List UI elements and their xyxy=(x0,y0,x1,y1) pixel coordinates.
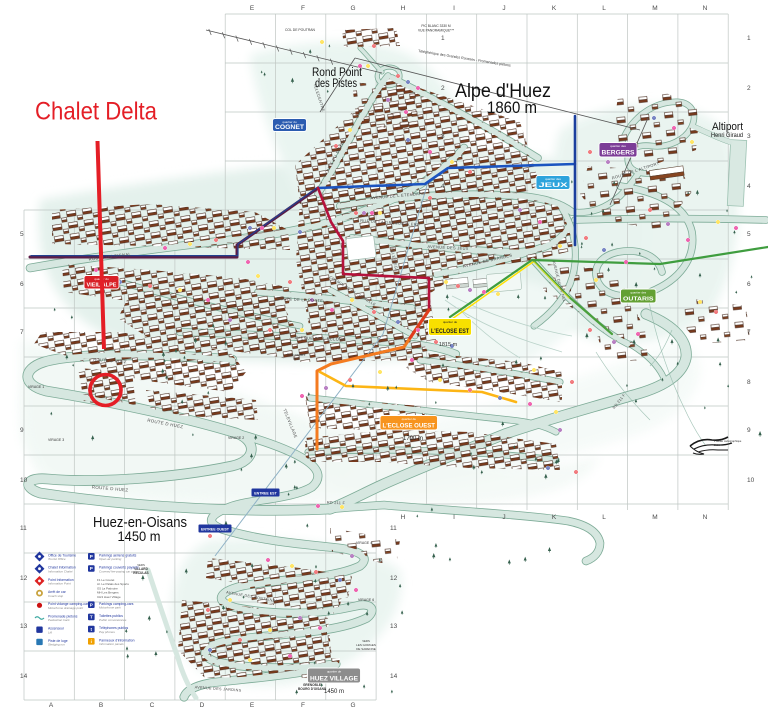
svg-text:Information panels: Information panels xyxy=(99,642,124,646)
svg-text:VUE PANORAMIQUE***: VUE PANORAMIQUE*** xyxy=(418,29,455,33)
svg-text:L'Atelier cartographique: L'Atelier cartographique xyxy=(714,439,742,443)
svg-text:2: 2 xyxy=(441,85,445,92)
svg-text:J: J xyxy=(502,5,505,12)
svg-text:C: C xyxy=(150,702,155,709)
svg-text:13: 13 xyxy=(20,623,28,630)
svg-text:Coach stop: Coach stop xyxy=(48,594,64,598)
svg-text:P: P xyxy=(90,554,93,559)
svg-text:12: 12 xyxy=(20,575,28,582)
svg-text:JEUX: JEUX xyxy=(539,182,570,189)
svg-text:Pay phones: Pay phones xyxy=(99,630,115,634)
svg-text:Chalet Delta: Chalet Delta xyxy=(35,98,157,126)
svg-text:I: I xyxy=(453,514,455,521)
svg-text:VFD: VFD xyxy=(293,357,300,361)
svg-text:D: D xyxy=(200,702,205,709)
svg-text:F: F xyxy=(301,5,305,12)
svg-text:11: 11 xyxy=(20,525,27,532)
svg-text:H: H xyxy=(401,5,406,12)
svg-text:G: G xyxy=(350,5,355,12)
svg-text:14: 14 xyxy=(390,673,398,680)
svg-text:RD 211 F: RD 211 F xyxy=(327,501,346,506)
svg-text:OUTARIS: OUTARIS xyxy=(623,296,654,302)
svg-text:6: 6 xyxy=(20,281,24,288)
svg-text:quartier des: quartier des xyxy=(545,177,561,181)
svg-text:1790 m: 1790 m xyxy=(403,436,423,442)
svg-text:1815 m: 1815 m xyxy=(439,342,458,348)
svg-text:9: 9 xyxy=(747,427,751,434)
svg-text:CH3 Huez Village: CH3 Huez Village xyxy=(97,595,121,599)
svg-text:PIC BLANC 3330 M: PIC BLANC 3330 M xyxy=(421,24,451,28)
svg-text:COL DE POUTRAN: COL DE POUTRAN xyxy=(285,28,316,32)
svg-text:M: M xyxy=(652,514,657,521)
svg-text:Motorhome drainage point: Motorhome drainage point xyxy=(48,606,83,610)
svg-text:N: N xyxy=(703,514,708,521)
svg-text:L: L xyxy=(602,514,606,521)
svg-text:COGNET: COGNET xyxy=(275,124,304,131)
svg-text:quartier de: quartier de xyxy=(327,670,342,674)
svg-text:10: 10 xyxy=(747,477,755,484)
svg-text:M: M xyxy=(652,5,657,12)
svg-text:Tourist Office: Tourist Office xyxy=(48,557,66,561)
svg-text:13: 13 xyxy=(390,623,398,630)
svg-text:ENTREE OUEST: ENTREE OUEST xyxy=(201,528,230,532)
svg-text:1: 1 xyxy=(441,35,445,42)
svg-text:i: i xyxy=(91,639,92,644)
svg-text:3: 3 xyxy=(441,133,445,140)
svg-text:VIRAGE 1: VIRAGE 1 xyxy=(28,385,44,389)
svg-text:F: F xyxy=(301,702,305,709)
svg-text:HUEZ VILLAGE: HUEZ VILLAGE xyxy=(310,675,358,682)
svg-text:Sledging run: Sledging run xyxy=(48,643,65,647)
svg-text:N: N xyxy=(703,5,708,12)
svg-text:Open-air parking: Open-air parking xyxy=(99,557,122,561)
svg-text:14: 14 xyxy=(20,673,28,680)
svg-text:ENTREE EST: ENTREE EST xyxy=(254,492,277,496)
svg-text:VIRAGE 3: VIRAGE 3 xyxy=(48,438,64,442)
svg-text:7: 7 xyxy=(747,329,751,336)
svg-text:VIRAGE 6: VIRAGE 6 xyxy=(358,598,374,602)
svg-text:6: 6 xyxy=(747,281,751,288)
svg-text:Pedestrian track: Pedestrian track xyxy=(48,618,70,622)
svg-text:1: 1 xyxy=(747,35,751,42)
svg-text:Henri Giraud: Henri Giraud xyxy=(711,133,743,139)
svg-text:P: P xyxy=(90,566,93,571)
svg-text:quartier de: quartier de xyxy=(443,320,458,324)
svg-text:12: 12 xyxy=(390,575,398,582)
svg-text:E: E xyxy=(250,5,255,12)
svg-text:2005: 2005 xyxy=(714,443,720,447)
svg-text:quartier de: quartier de xyxy=(402,417,417,421)
svg-text:T: T xyxy=(90,615,93,620)
svg-text:1450 m: 1450 m xyxy=(324,689,344,695)
svg-text:H: H xyxy=(401,514,406,521)
svg-text:Information Point: Information Point xyxy=(48,582,71,586)
svg-text:Lift: Lift xyxy=(48,630,52,634)
svg-text:Motorhome park: Motorhome park xyxy=(99,606,121,610)
svg-text:11: 11 xyxy=(390,525,397,532)
svg-text:1860 m: 1860 m xyxy=(487,98,537,117)
svg-text:quartier des: quartier des xyxy=(630,291,646,295)
svg-text:I: I xyxy=(453,5,455,12)
svg-text:1450 m: 1450 m xyxy=(118,528,161,544)
svg-text:Public conveniences: Public conveniences xyxy=(99,618,127,622)
svg-text:quartier des: quartier des xyxy=(610,144,626,148)
svg-text:B: B xyxy=(99,702,103,709)
svg-text:4: 4 xyxy=(441,183,445,190)
svg-text:BERGERS: BERGERS xyxy=(602,149,635,156)
svg-text:Altiport: Altiport xyxy=(712,121,743,133)
svg-text:8: 8 xyxy=(747,379,751,386)
svg-text:DE SARENNE: DE SARENNE xyxy=(356,647,376,651)
svg-text:G: G xyxy=(350,702,355,709)
svg-text:4: 4 xyxy=(747,183,751,190)
svg-text:K: K xyxy=(552,514,557,521)
svg-text:K: K xyxy=(552,5,557,12)
svg-text:2: 2 xyxy=(747,85,751,92)
svg-text:E: E xyxy=(250,702,255,709)
svg-text:L: L xyxy=(602,5,606,12)
svg-text:5: 5 xyxy=(747,231,751,238)
svg-text:L'ECLOSE EST: L'ECLOSE EST xyxy=(431,329,469,335)
svg-text:9: 9 xyxy=(20,427,24,434)
svg-text:10: 10 xyxy=(20,477,28,484)
svg-text:des Pistes: des Pistes xyxy=(315,78,357,90)
svg-text:J: J xyxy=(502,514,505,521)
svg-text:P: P xyxy=(90,602,93,607)
svg-text:BOURG D'OISANS: BOURG D'OISANS xyxy=(298,687,326,691)
svg-text:Information Chalet: Information Chalet xyxy=(48,569,73,573)
svg-text:5: 5 xyxy=(20,231,24,238)
svg-text:VIRAGE 2: VIRAGE 2 xyxy=(228,436,244,440)
svg-text:A: A xyxy=(49,702,54,709)
svg-text:VIRAGE 4: VIRAGE 4 xyxy=(356,541,372,545)
svg-text:Covered fee-paying car parks: Covered fee-paying car parks xyxy=(99,569,139,573)
svg-text:7: 7 xyxy=(20,329,24,336)
svg-text:L'ECLOSE OUEST: L'ECLOSE OUEST xyxy=(383,422,436,429)
svg-text:3: 3 xyxy=(747,133,751,140)
